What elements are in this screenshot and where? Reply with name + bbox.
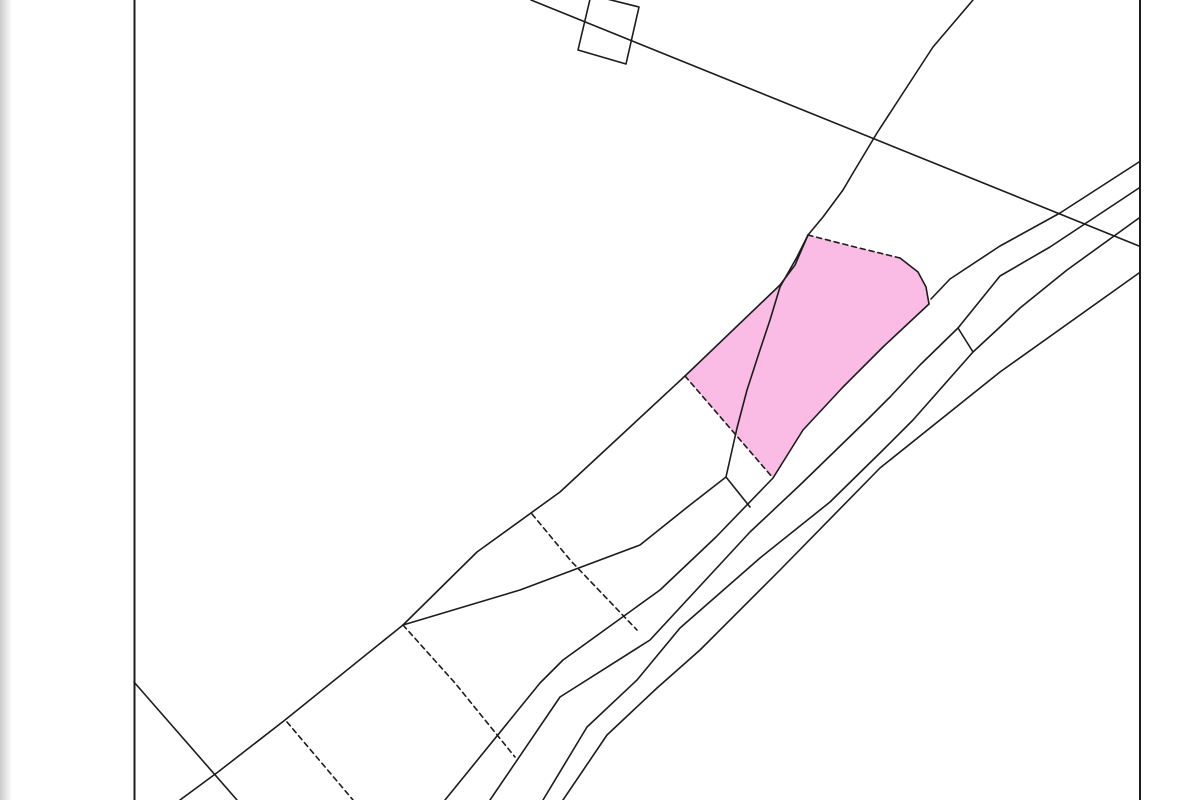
parcel-divider-3 (532, 514, 637, 630)
road-connector-south (726, 477, 750, 507)
cadastral-map[interactable] (0, 0, 1200, 800)
strip-upper-boundary (403, 376, 685, 625)
corner-diagonal (134, 682, 237, 800)
road-edge-upper-1 (931, 162, 1139, 299)
parcel-divider-2 (287, 722, 353, 800)
parcel-divider-1 (403, 625, 515, 757)
cadastral-map-viewport[interactable] (0, 0, 1200, 800)
road-connector-north (958, 328, 973, 352)
strip-lower-boundary (403, 477, 726, 625)
left-gutter (0, 0, 12, 800)
long-diagonal-boundary (531, 0, 1139, 246)
